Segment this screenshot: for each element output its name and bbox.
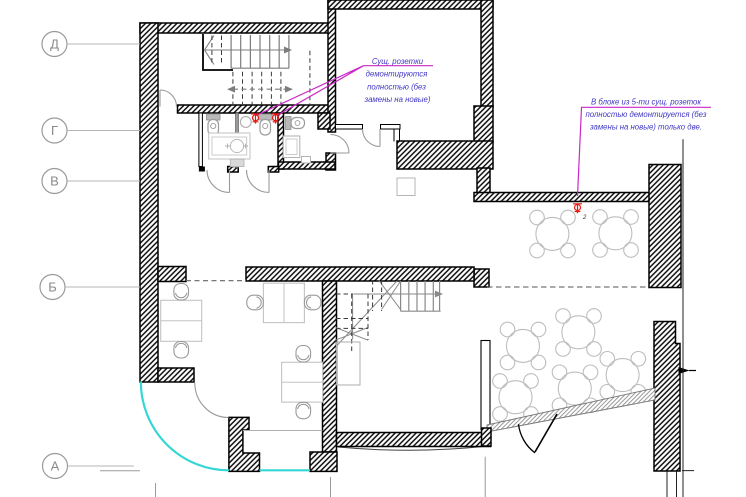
svg-text:Г: Г xyxy=(51,123,58,138)
svg-text:полностью (без: полностью (без xyxy=(367,83,426,92)
svg-text:демонтируются: демонтируются xyxy=(366,70,429,79)
svg-text:А: А xyxy=(51,459,60,474)
svg-text:В: В xyxy=(50,174,59,189)
svg-text:замены на новые) только две.: замены на новые) только две. xyxy=(589,123,702,132)
svg-text:Д: Д xyxy=(50,37,59,52)
svg-text:полностью демонтируется (без: полностью демонтируется (без xyxy=(585,110,706,119)
svg-text:Сущ. розетки: Сущ. розетки xyxy=(372,57,424,66)
svg-text:В блоке из 5-ти сущ. розеток: В блоке из 5-ти сущ. розеток xyxy=(591,98,701,107)
svg-text:Б: Б xyxy=(48,280,57,295)
svg-text:2: 2 xyxy=(582,215,587,221)
svg-text:замены на новые): замены на новые) xyxy=(364,95,431,104)
